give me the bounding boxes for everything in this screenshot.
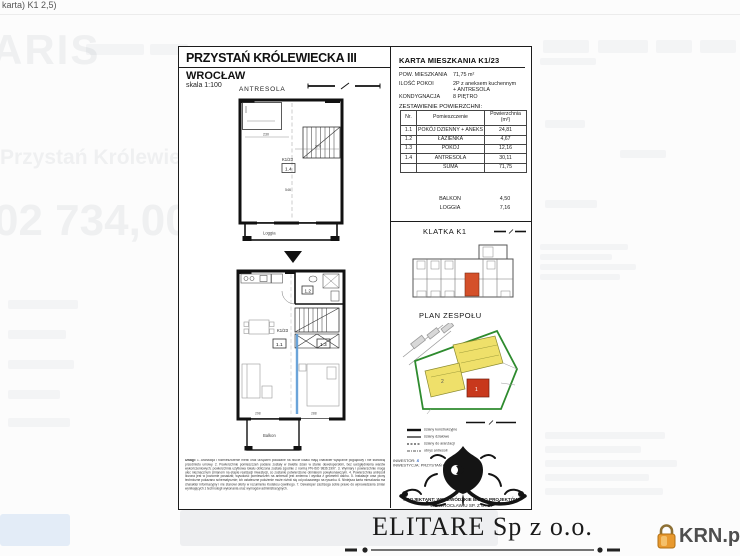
exterior-walls	[238, 271, 344, 419]
cell-room: ŁAZIENKA	[417, 135, 485, 144]
level-label: ANTRESOLA	[239, 86, 286, 93]
background-ghost-text	[545, 200, 597, 208]
field-label: POW. MIESZKANIA	[399, 72, 451, 78]
floor-plan-antresola: 230 270 546 K1/23 1.4 Loggia	[237, 97, 345, 243]
window-opening	[301, 416, 329, 422]
scale-bar-icon	[465, 419, 517, 426]
unit-label: K1/23	[277, 328, 289, 333]
background-ghost-text	[8, 418, 70, 427]
cell-area: 12,16	[485, 145, 527, 154]
card-title: KARTA MIESZKANIA K1/23	[399, 56, 525, 68]
background-ghost-text	[545, 446, 641, 453]
cell-nr: 1.3	[401, 145, 417, 154]
site-building-highlighted	[467, 379, 489, 397]
background-ghost-text	[8, 390, 60, 399]
background-ghost-text	[540, 254, 612, 260]
cell-room: SUMA	[417, 163, 485, 172]
area-table: Nr. Pomieszczenie Powierzchnia (m²) 1.1 …	[400, 110, 527, 173]
background-divider	[0, 14, 740, 15]
cell-area: 71,75	[485, 163, 527, 172]
notes-body: 1. Aranżacja i rozmieszczenie mebli oraz…	[185, 459, 385, 490]
cell-nr: 1.2	[401, 135, 417, 144]
table-row: 1.2 ŁAZIENKA 4,67	[401, 135, 527, 144]
background-ghost-text	[540, 264, 636, 270]
bed	[299, 364, 339, 406]
room-number: 1.2	[305, 289, 312, 294]
field-label: ILOŚĆ POKOI	[399, 81, 451, 87]
browser-tab-title-fragment: karta) K1 2,5)	[2, 0, 57, 10]
decorative-rule	[345, 545, 620, 555]
scale-bar-icon	[307, 81, 381, 91]
col-header: Nr.	[401, 111, 417, 126]
fine-print-notes: Uwagi: 1. Aranżacja i rozmieszczenie meb…	[185, 459, 385, 505]
card-pane: KARTA MIESZKANIA K1/23 POW. MIESZKANIA 7…	[390, 47, 530, 508]
city-label: WROCŁAW	[186, 70, 245, 82]
apartment-card-document[interactable]: PRZYSTAŃ KRÓLEWIECKA III WROCŁAW skala 1…	[178, 46, 532, 510]
background-ghost-text	[620, 150, 666, 158]
background-ghost-text	[540, 244, 628, 250]
col-header: Pomieszczenie	[417, 111, 485, 126]
cell-area: 30,11	[485, 154, 527, 163]
window-lintel	[285, 270, 295, 275]
room-number: 1.1	[276, 342, 283, 348]
background-nav-item[interactable]	[86, 44, 144, 55]
background-ghost-text	[545, 488, 663, 495]
balcony-label: Balkon	[263, 433, 276, 438]
field-label: KONDYGNACJA	[399, 94, 451, 100]
legend-label: ściany działowe	[424, 435, 449, 439]
projektant-line: PROJEKTANT: WOJEWÓDZKIE BIURO PROJEKTÓW	[391, 497, 531, 502]
field-value-cont: + ANTRESOLA	[453, 87, 529, 93]
down-arrow-icon	[284, 251, 302, 263]
legend-item: ściany działowe	[407, 433, 466, 440]
highlighted-unit	[465, 273, 479, 296]
field-value: 71,75 m²	[453, 72, 529, 78]
table-row: 1.4 ANTRESOLA 30,11	[401, 154, 527, 163]
dimension-label: 288	[311, 412, 317, 416]
projektant-line: WE WROCŁAWIU SP. Z O. O.	[391, 503, 531, 508]
plans-pane: PRZYSTAŃ KRÓLEWIECKA III WROCŁAW skala 1…	[179, 47, 390, 508]
site-building-b-label: 2	[441, 379, 444, 385]
staircase	[303, 127, 340, 158]
site-building-a	[453, 336, 503, 373]
roads	[403, 323, 454, 365]
background-ghost-text	[8, 360, 74, 369]
krn-logo-text: KRN.pl	[679, 525, 740, 548]
cell-nr: 1.1	[401, 126, 417, 135]
room-number: 1.4	[285, 167, 292, 173]
window-lintel	[325, 99, 340, 104]
building-floor-mini-plan	[409, 241, 519, 303]
table-row: 1.3 POKÓJ 12,16	[401, 145, 527, 154]
site-building-b	[425, 363, 465, 397]
field-value: 8 PIĘTRO	[453, 94, 529, 100]
background-ghost-text	[540, 58, 596, 65]
dimension-label: 270	[315, 145, 321, 149]
title-rule	[179, 67, 390, 68]
extra-label: LOGGIA	[416, 205, 484, 211]
background-ghost-text	[545, 432, 665, 439]
company-name: ELITARE Sp z o.o.	[350, 512, 615, 542]
project-title: PRZYSTAŃ KRÓLEWIECKA III	[186, 51, 357, 65]
cell-room: POKÓJ	[417, 145, 485, 154]
legend-item: ściany konstrukcyjne	[407, 426, 479, 433]
background-ghost-text	[545, 120, 585, 128]
background-nav-item[interactable]	[598, 40, 648, 53]
cell-area: 24,81	[485, 126, 527, 135]
door-swing	[282, 291, 295, 304]
balcony: Balkon	[245, 419, 302, 451]
background-ghost-text	[8, 330, 66, 339]
section-title-plan-zespolu: PLAN ZESPOŁU	[419, 311, 482, 320]
staircase	[295, 308, 339, 332]
page: karta) K1 2,5) ARIS Przystań Królewieck:…	[0, 0, 740, 556]
dimension-label: 546	[285, 188, 291, 192]
extra-value: 4,50	[484, 196, 526, 202]
room-number: 1.3	[320, 342, 327, 348]
scale-label: skala 1:100	[186, 82, 222, 89]
background-ghost-text	[545, 474, 649, 481]
unit-label: K1/23	[282, 157, 294, 162]
site-plan: 2 1	[401, 323, 523, 415]
background-price: 02 734,00	[0, 196, 190, 246]
background-button[interactable]	[0, 514, 70, 546]
notes-heading: Uwagi:	[185, 459, 196, 462]
dimension-label: 230	[263, 133, 269, 137]
extra-label: BALKON	[416, 196, 484, 202]
background-ghost-text	[545, 460, 677, 467]
background-nav-item[interactable]	[700, 40, 736, 53]
extra-value: 7,16	[484, 205, 526, 211]
legend-label: ściany konstrukcyjne	[424, 428, 457, 432]
section-divider	[391, 221, 531, 222]
section-title-klatka: KLATKA K1	[423, 227, 467, 236]
dining-table	[244, 320, 274, 334]
table-row-suma: SUMA 71,75	[401, 163, 527, 172]
scale-bar-icon	[493, 228, 527, 235]
site-building-highlighted-label: 1	[475, 387, 478, 393]
table-row: 1.1 POKÓJ DZIENNY + ANEKS 24,81	[401, 126, 527, 135]
dimension-label: 298	[255, 412, 261, 416]
cell-room: ANTRESOLA	[417, 154, 485, 163]
loggia-label: Loggia	[263, 231, 276, 236]
cell-room: POKÓJ DZIENNY + ANEKS	[417, 126, 485, 135]
sofa	[242, 364, 272, 398]
background-ghost-text	[540, 274, 620, 280]
closet-room	[243, 103, 282, 130]
floor-plan-main-level: 1.2	[235, 268, 347, 454]
background-nav-item[interactable]	[543, 40, 589, 53]
cell-nr: 1.4	[401, 154, 417, 163]
window-lintel	[240, 270, 252, 275]
col-header: Powierzchnia (m²)	[485, 111, 527, 126]
kitchen-annex	[241, 274, 283, 283]
cell-area: 4,67	[485, 135, 527, 144]
cell-nr	[401, 163, 417, 172]
extra-area-row: LOGGIA 7,16	[400, 205, 526, 211]
bathroom: 1.2	[282, 271, 344, 304]
extra-area-row: BALKON 4,50	[400, 196, 526, 202]
padlock-icon	[656, 523, 677, 549]
background-nav-item[interactable]	[656, 40, 692, 53]
krn-watermark[interactable]: KRN.pl	[656, 523, 740, 549]
background-ghost-text	[8, 300, 78, 309]
